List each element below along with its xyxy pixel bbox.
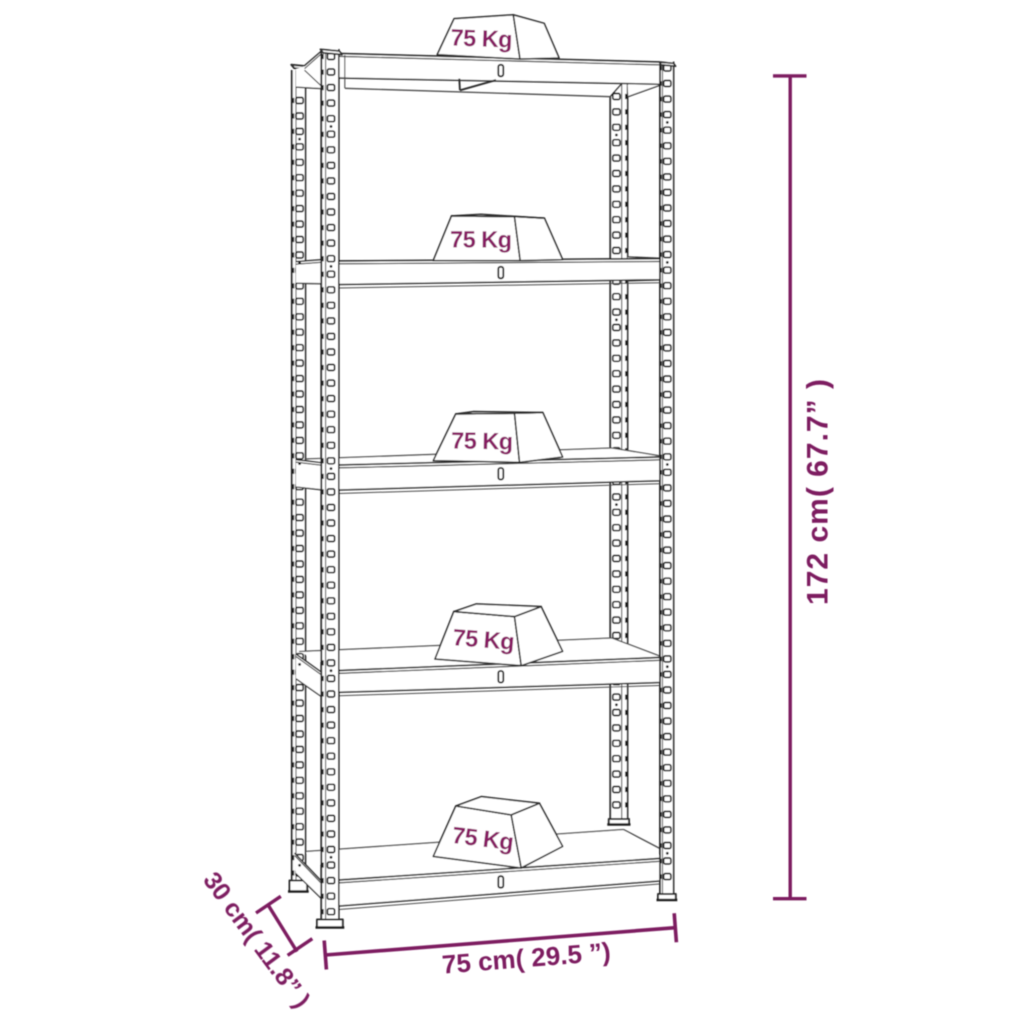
svg-text:172 cm( 67.7” ): 172 cm( 67.7” ) xyxy=(802,379,835,605)
svg-text:75 Kg: 75 Kg xyxy=(450,24,513,52)
svg-text:75 Kg: 75 Kg xyxy=(450,226,512,252)
svg-text:75 Kg: 75 Kg xyxy=(451,427,513,454)
svg-text:75 Kg: 75 Kg xyxy=(452,624,516,655)
